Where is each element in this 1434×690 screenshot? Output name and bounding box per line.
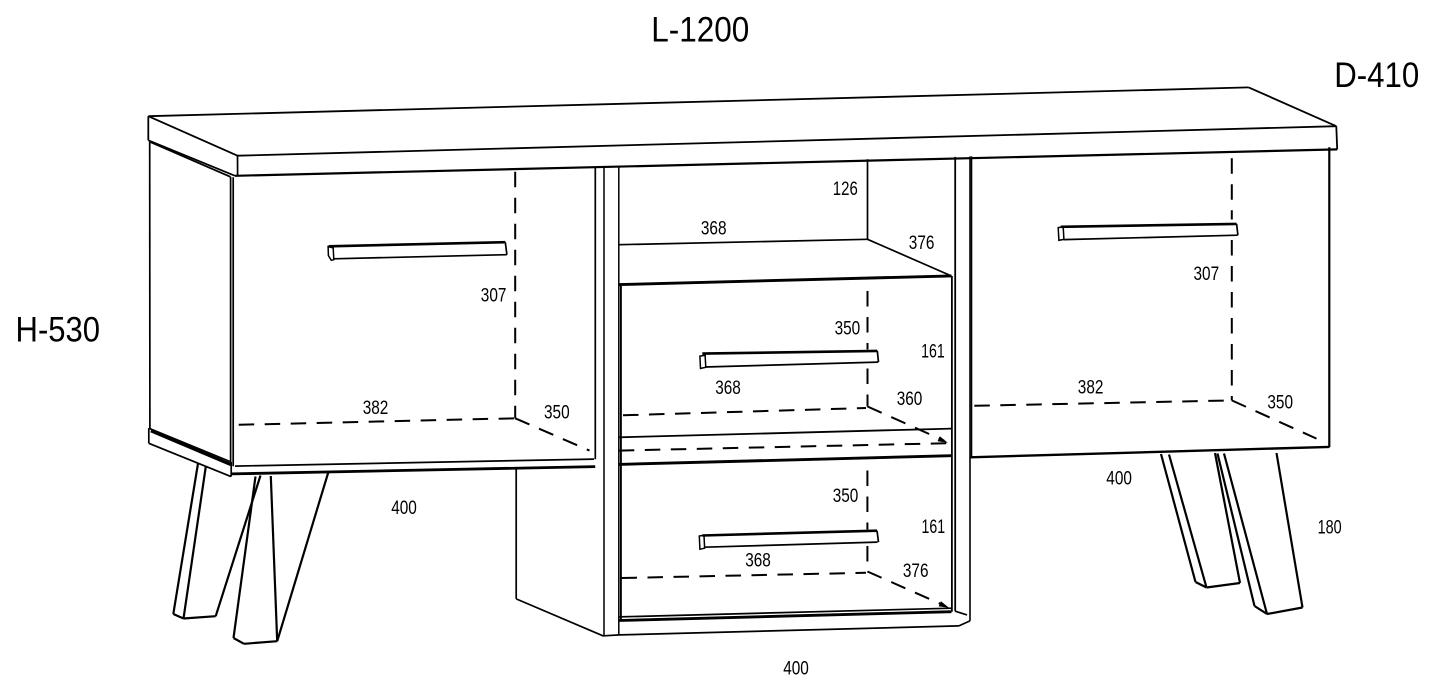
- svg-text:382: 382: [1078, 378, 1104, 399]
- svg-text:350: 350: [544, 403, 570, 424]
- svg-text:161: 161: [921, 342, 945, 363]
- svg-text:368: 368: [701, 218, 727, 239]
- svg-text:161: 161: [922, 517, 946, 538]
- svg-text:350: 350: [1267, 393, 1293, 414]
- svg-text:D-410: D-410: [1334, 56, 1419, 95]
- svg-text:368: 368: [715, 378, 741, 399]
- svg-text:350: 350: [835, 318, 861, 339]
- svg-text:307: 307: [1194, 264, 1220, 285]
- svg-text:350: 350: [833, 486, 859, 507]
- svg-text:382: 382: [363, 398, 389, 419]
- svg-text:376: 376: [903, 561, 929, 582]
- svg-text:126: 126: [833, 179, 858, 200]
- svg-text:307: 307: [481, 286, 507, 307]
- svg-text:376: 376: [909, 233, 935, 254]
- svg-text:360: 360: [897, 389, 923, 410]
- svg-text:400: 400: [391, 498, 417, 519]
- svg-text:368: 368: [745, 551, 771, 572]
- svg-text:L-1200: L-1200: [651, 10, 749, 49]
- svg-text:400: 400: [783, 658, 809, 679]
- svg-text:180: 180: [1318, 517, 1342, 538]
- svg-text:400: 400: [1106, 469, 1132, 490]
- svg-text:H-530: H-530: [16, 310, 101, 349]
